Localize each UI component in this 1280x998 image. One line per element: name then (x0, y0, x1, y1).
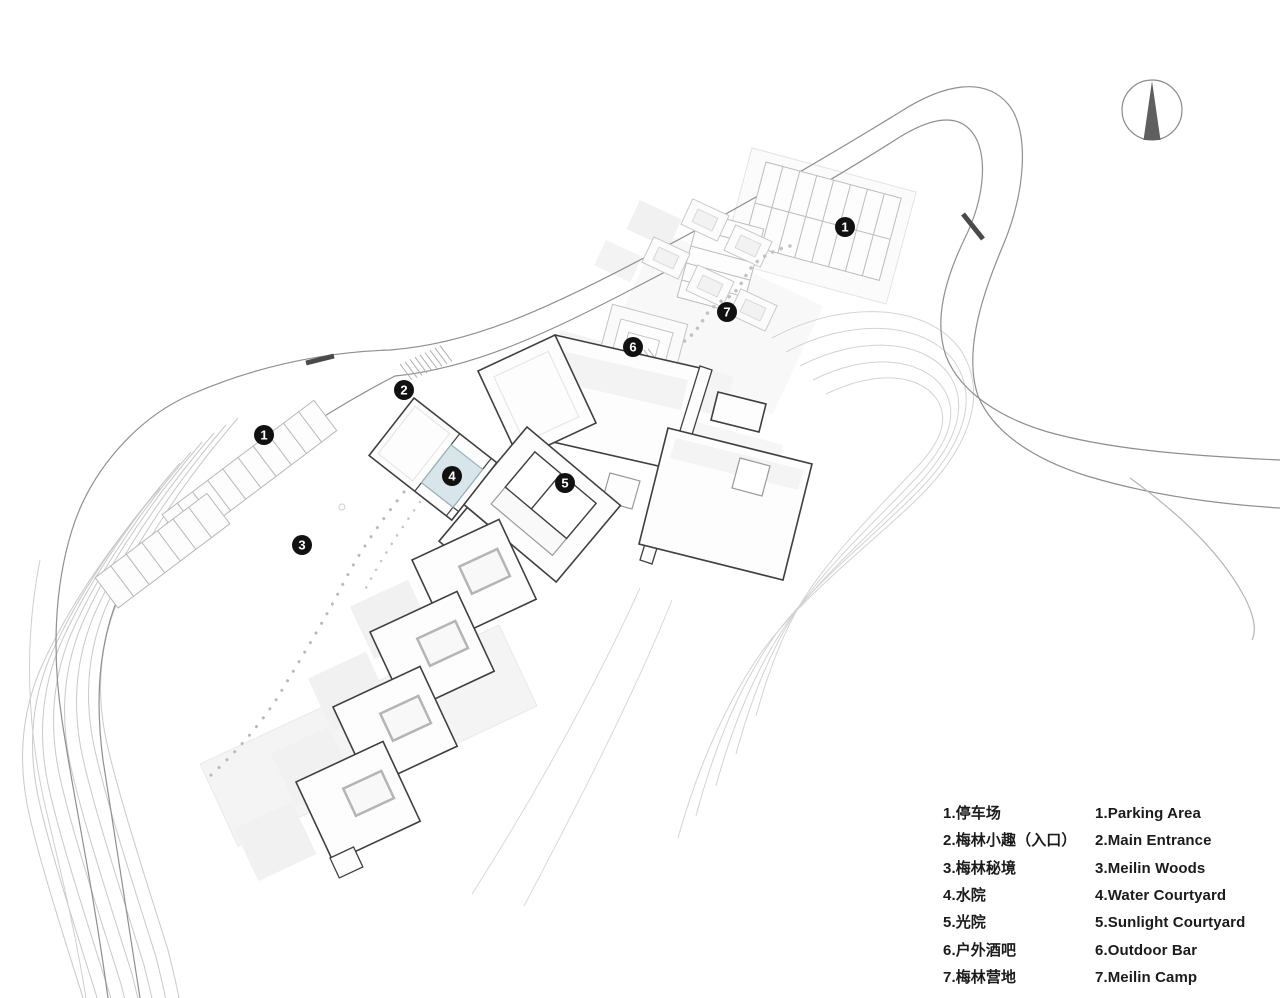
legend-zh-2: 2.梅林小趣（入口） (943, 827, 1093, 854)
north-arrow-icon (1122, 80, 1182, 140)
legend: 1.停车场1.Parking Area2.梅林小趣（入口）2.Main Entr… (943, 800, 1273, 991)
legend-en-6: 6.Outdoor Bar (1095, 937, 1273, 964)
svg-text:6: 6 (629, 340, 636, 355)
plan-marker-parking-area-west: 1 (254, 425, 274, 445)
plan-marker-parking-area-north: 1 (835, 217, 855, 237)
plan-marker-main-entrance: 2 (394, 380, 414, 400)
legend-zh-3: 3.梅林秘境 (943, 855, 1093, 882)
legend-en-2: 2.Main Entrance (1095, 827, 1273, 854)
svg-text:7: 7 (723, 305, 730, 320)
legend-en-1: 1.Parking Area (1095, 800, 1273, 827)
plan-marker-meilin-woods: 3 (292, 535, 312, 555)
plan-marker-water-courtyard: 4 (442, 466, 462, 486)
svg-text:1: 1 (841, 220, 848, 235)
svg-text:4: 4 (448, 469, 456, 484)
site-plan-page: 11234567 1.停车场1.Parking Area2.梅林小趣（入口）2.… (0, 0, 1280, 998)
legend-zh-7: 7.梅林营地 (943, 964, 1093, 991)
svg-text:2: 2 (400, 383, 407, 398)
svg-text:5: 5 (561, 476, 568, 491)
legend-en-4: 4.Water Courtyard (1095, 882, 1273, 909)
legend-zh-4: 4.水院 (943, 882, 1093, 909)
plan-marker-meilin-camp: 7 (717, 302, 737, 322)
legend-en-5: 5.Sunlight Courtyard (1095, 909, 1273, 936)
legend-zh-6: 6.户外酒吧 (943, 937, 1093, 964)
svg-text:1: 1 (260, 428, 267, 443)
legend-zh-1: 1.停车场 (943, 800, 1093, 827)
road-branch (1130, 478, 1254, 640)
legend-en-3: 3.Meilin Woods (1095, 855, 1273, 882)
parking-west-stalls (95, 400, 337, 608)
gate-mark-west (306, 356, 334, 363)
legend-en-7: 7.Meilin Camp (1095, 964, 1273, 991)
plan-marker-outdoor-bar: 6 (623, 337, 643, 357)
svg-text:3: 3 (298, 538, 305, 553)
legend-zh-5: 5.光院 (943, 909, 1093, 936)
plan-marker-sunlight-courtyard: 5 (555, 473, 575, 493)
trail-southwest-2 (524, 600, 672, 906)
